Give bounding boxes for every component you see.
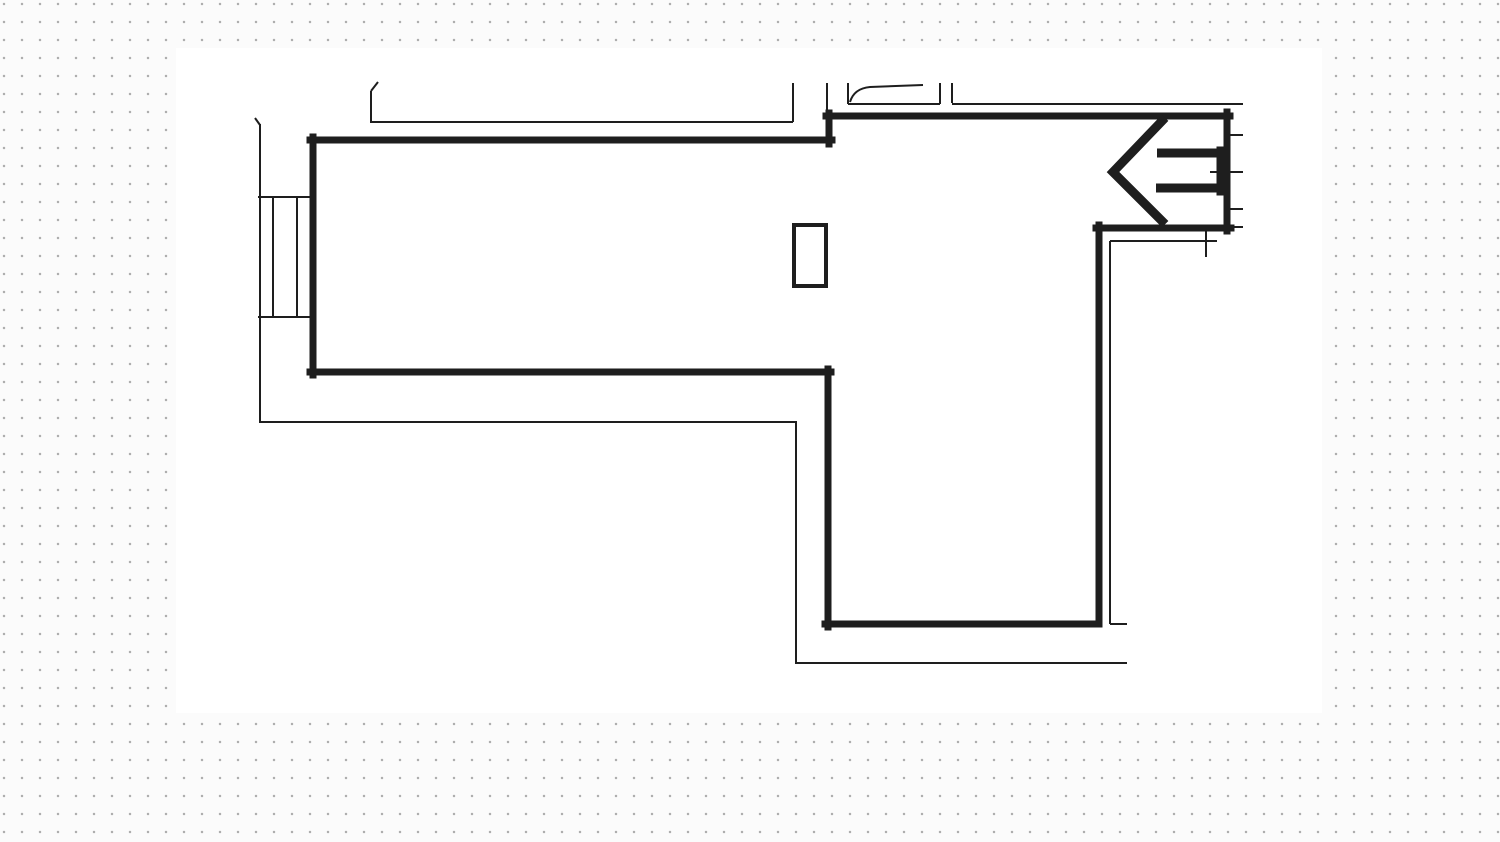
floorplan-drawing [0, 0, 1500, 842]
floorplan-viewport [0, 0, 1500, 842]
drawing-paper [176, 48, 1322, 713]
